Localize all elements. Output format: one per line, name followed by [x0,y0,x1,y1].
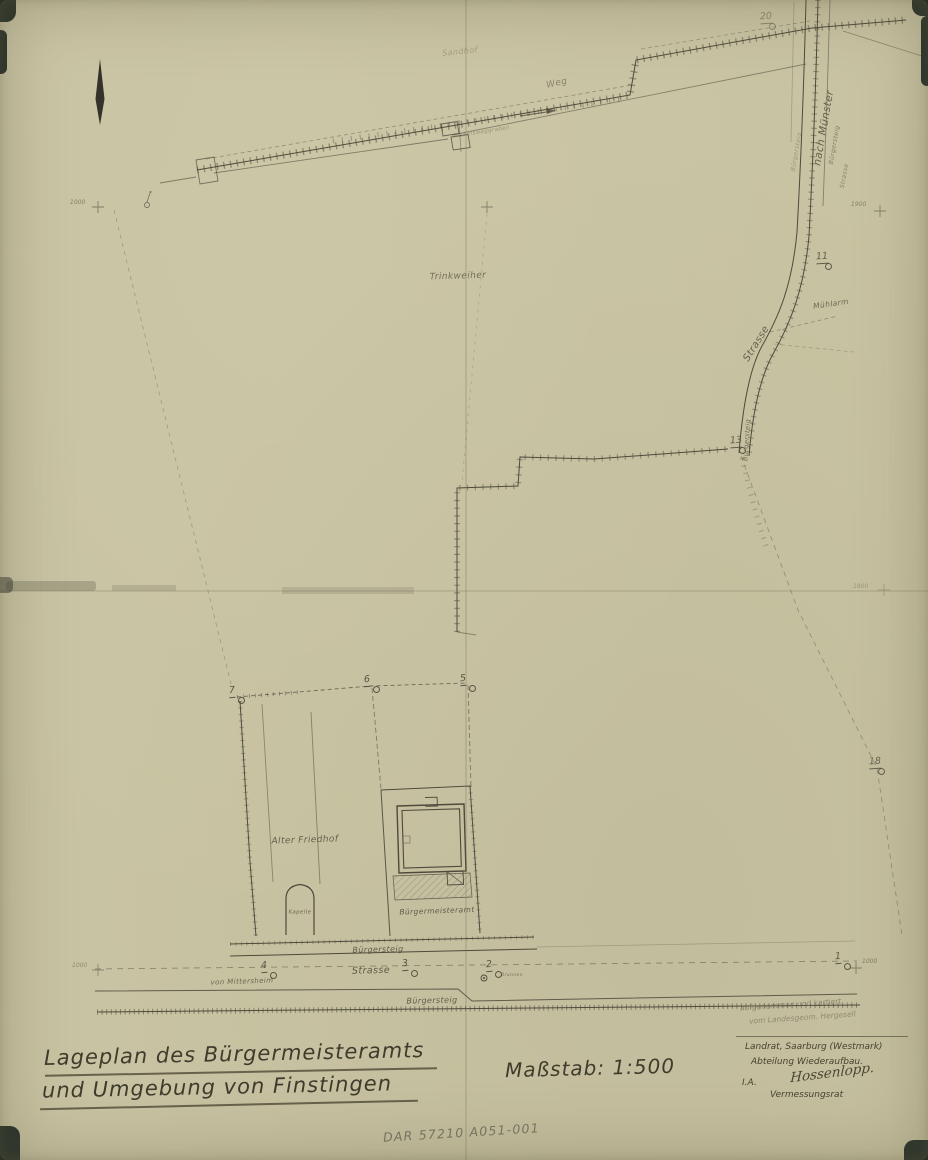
paper-sheet: SandhofWegRickelsweggrabenTrinkweihernac… [0,0,928,1160]
map-label-strasse-muenster: Strasse [840,163,850,189]
survey-point-marker-1 [844,963,851,970]
survey-point-4: 4 [261,961,268,973]
survey-point-7: 7 [229,686,236,698]
map-label-buergersteig-unten: Bürgersteig [406,996,457,1005]
map-label-alter-friedhof: Alter Friedhof [271,835,338,846]
survey-point-marker-13 [739,447,746,454]
survey-point-5: 5 [460,674,467,686]
scanned-map-page: SandhofWegRickelsweggrabenTrinkweihernac… [0,0,928,1160]
survey-point-marker-5 [469,685,476,692]
survey-point-6: 6 [364,675,371,687]
map-label-weg: Weg [546,77,569,90]
map-label-sandhof: Sandhof [442,46,478,58]
survey-point-18: 18 [869,757,882,769]
scan-edge-artifact [0,30,7,74]
survey-point-marker-20 [769,23,776,30]
scan-edge-artifact [904,1140,928,1160]
scan-edge-artifact [921,16,928,86]
office-role: Vermessungsrat [770,1090,843,1100]
survey-point-20: 20 [760,12,773,24]
survey-point-2: 2 [486,960,493,972]
map-label-trinkweiher: Trinkweiher [430,272,487,283]
office-line1: Landrat, Saarburg (Westmark) [745,1042,882,1052]
grid-coordinate-0: 1000 [70,200,85,206]
map-label-von-mittersheim: von Mittersheim [210,977,273,986]
map-label-strasse-diagonal: Strasse [742,324,772,363]
office-ia-label: I.A. [742,1078,757,1088]
survey-point-marker-11 [825,263,832,270]
grid-coordinate-1: 1900 [851,202,866,208]
office-block-separator [736,1036,908,1037]
grid-coordinate-3: 1000 [72,963,87,969]
map-label-buergersteig-saar: Bürgersteig [791,132,804,172]
survey-point-1: 1 [835,952,842,964]
survey-point-marker-7 [238,697,245,704]
survey-point-marker-4 [270,972,277,979]
scale-label: Maßstab: 1:500 [505,1055,676,1082]
survey-point-13: 13 [730,436,743,448]
survey-point-marker-6 [373,686,380,693]
survey-point-marker-3 [411,970,418,977]
survey-point-3: 3 [402,959,409,971]
map-label-buergersteig-oben: Bürgersteig [352,945,403,954]
scan-edge-artifact [0,1126,20,1160]
map-label-buergersteig-kurve: Bürgersteig [742,419,751,462]
map-label-weggraben: Rickelsweggraben [454,126,511,140]
survey-point-marker-18 [878,768,885,775]
map-label-buergermeisteramt: Bürgermeisteramt [399,906,474,916]
map-label-strasse-unten: Strasse [352,966,390,976]
map-label-buergersteig-muenster: Bürgersteig [829,125,842,165]
survey-point-11: 11 [816,252,829,264]
survey-point-marker-2 [495,971,502,978]
map-labels-layer: SandhofWegRickelsweggrabenTrinkweihernac… [0,0,928,1160]
map-label-muehlarm: Mühlarm [813,298,850,310]
map-label-brunnen: Brunnen [501,974,523,979]
map-label-kapelle: Kapelle [289,910,312,916]
grid-coordinate-4: 1000 [862,959,877,965]
grid-coordinate-2: 1800 [853,584,868,590]
